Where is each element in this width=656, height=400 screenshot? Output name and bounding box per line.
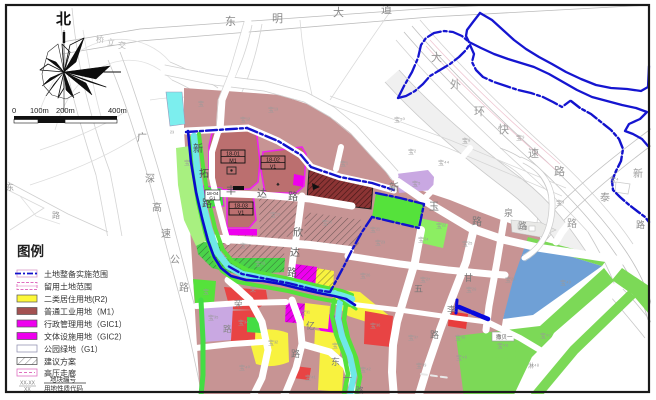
svg-text:路: 路 <box>472 215 482 228</box>
svg-text:环: 环 <box>474 106 485 118</box>
svg-text:路: 路 <box>223 324 232 334</box>
svg-text:宝⁴: 宝⁴ <box>610 176 619 184</box>
svg-text:新: 新 <box>193 142 203 155</box>
svg-text:高: 高 <box>152 201 162 214</box>
svg-text:宝¹⁵: 宝¹⁵ <box>270 211 281 219</box>
svg-text:宝⁴⁷: 宝⁴⁷ <box>540 332 551 340</box>
svg-text:建议方案: 建议方案 <box>44 357 76 367</box>
svg-text:公: 公 <box>170 255 180 266</box>
svg-text:外: 外 <box>450 78 461 91</box>
svg-text:宝⁴⁴: 宝⁴⁴ <box>438 159 450 167</box>
svg-text:李: 李 <box>447 304 456 315</box>
svg-text:V1: V1 <box>270 164 277 170</box>
svg-text:宝³³: 宝³³ <box>332 342 342 350</box>
svg-text:路: 路 <box>288 190 298 203</box>
svg-text:宝⁵⁰: 宝⁵⁰ <box>394 116 405 124</box>
svg-text:新: 新 <box>633 167 643 180</box>
svg-text:宝³⁷: 宝³⁷ <box>408 334 418 342</box>
svg-text:宝: 宝 <box>198 100 204 108</box>
svg-text:快: 快 <box>498 123 509 136</box>
svg-text:公园绿地（G1）: 公园绿地（G1） <box>44 344 103 354</box>
svg-text:拓: 拓 <box>199 168 209 180</box>
svg-text:400m: 400m <box>108 106 127 115</box>
svg-text:路: 路 <box>291 348 300 359</box>
svg-text:宝⁴³: 宝⁴³ <box>560 279 571 287</box>
svg-text:北: 北 <box>56 11 71 28</box>
svg-text:100m: 100m <box>30 106 49 115</box>
svg-text:泰: 泰 <box>600 191 610 204</box>
svg-text:荣: 荣 <box>234 299 243 309</box>
svg-text:文体设施用地（GIC2）: 文体设施用地（GIC2） <box>44 332 127 342</box>
svg-text:桥: 桥 <box>96 34 104 44</box>
svg-text:速: 速 <box>161 228 171 240</box>
svg-text:宝⁹: 宝⁹ <box>516 134 525 142</box>
svg-text:一: 一 <box>343 373 352 383</box>
svg-text:二类居住用地(R2): 二类居住用地(R2) <box>44 294 108 304</box>
svg-text:深: 深 <box>145 173 155 185</box>
svg-text:宝²⁵: 宝²⁵ <box>462 240 473 248</box>
svg-text:宝¹⁷: 宝¹⁷ <box>240 242 250 250</box>
svg-text:图例: 图例 <box>17 243 44 259</box>
svg-text:大: 大 <box>333 5 344 19</box>
svg-text:宝³⁸: 宝³⁸ <box>455 334 466 342</box>
svg-text:V1: V1 <box>238 210 245 216</box>
svg-text:立: 立 <box>107 37 115 47</box>
svg-text:宝⁸: 宝⁸ <box>462 137 471 145</box>
svg-text:宝¹: 宝¹ <box>340 160 348 168</box>
svg-text:丰: 丰 <box>226 184 236 197</box>
svg-text:路: 路 <box>52 210 60 220</box>
svg-text:五: 五 <box>414 284 423 294</box>
svg-text:²³: ²³ <box>170 131 174 137</box>
svg-text:宝¹⁸: 宝¹⁸ <box>255 260 266 268</box>
svg-text:路: 路 <box>430 329 439 340</box>
svg-text:0: 0 <box>12 106 16 115</box>
svg-text:宝³⁹: 宝³⁹ <box>416 362 427 370</box>
svg-text:18-03: 18-03 <box>234 204 248 210</box>
svg-text:东: 东 <box>225 15 236 28</box>
svg-text:宝⁴²: 宝⁴² <box>360 366 371 374</box>
svg-text:东: 东 <box>331 356 340 367</box>
svg-text:达: 达 <box>257 188 267 200</box>
svg-text:玉: 玉 <box>429 202 439 213</box>
svg-text:宝²⁶: 宝²⁶ <box>360 272 371 280</box>
svg-text:欣: 欣 <box>293 226 303 239</box>
svg-text:泉: 泉 <box>504 207 513 218</box>
svg-text:明: 明 <box>272 12 283 25</box>
svg-text:土地整备实施范围: 土地整备实施范围 <box>44 269 108 279</box>
svg-text:18-02: 18-02 <box>266 158 280 164</box>
svg-text:大: 大 <box>431 50 442 64</box>
svg-text:宝²³: 宝²³ <box>375 239 385 247</box>
svg-text:宝: 宝 <box>184 159 190 167</box>
svg-text:荣: 荣 <box>250 286 256 294</box>
svg-text:宝: 宝 <box>203 288 209 296</box>
svg-text:宝²⁴: 宝²⁴ <box>418 236 429 244</box>
svg-text:宝³¹: 宝³¹ <box>300 309 310 317</box>
svg-text:留用土地范围: 留用土地范围 <box>44 282 92 292</box>
svg-text:路: 路 <box>287 266 297 279</box>
svg-text:路: 路 <box>179 281 189 294</box>
svg-text:路: 路 <box>567 217 577 230</box>
svg-text:宝²⁸: 宝²⁸ <box>466 286 477 294</box>
svg-text:甘: 甘 <box>464 272 473 283</box>
svg-text:宝³: 宝³ <box>556 199 564 207</box>
svg-text:宝⁴⁵: 宝⁴⁵ <box>497 342 509 350</box>
svg-text:宝²²: 宝²² <box>436 222 446 230</box>
svg-text:行政管理用地（GIC1）: 行政管理用地（GIC1） <box>44 319 127 329</box>
svg-text:宝³⁵: 宝³⁵ <box>208 314 219 322</box>
svg-text:路: 路 <box>554 165 565 178</box>
svg-text:交: 交 <box>118 40 126 50</box>
svg-text:宝²⁹: 宝²⁹ <box>505 276 516 284</box>
svg-text:G1: G1 <box>209 196 216 201</box>
svg-text:速: 速 <box>528 147 539 160</box>
svg-text:宝¹³: 宝¹³ <box>268 106 278 114</box>
svg-text:宝²: 宝² <box>408 148 416 156</box>
svg-text:宝³⁶: 宝³⁶ <box>370 322 381 330</box>
svg-text:18-01: 18-01 <box>226 152 240 158</box>
svg-text:宝³⁴: 宝³⁴ <box>238 319 249 327</box>
svg-text:宝²¹: 宝²¹ <box>370 226 380 234</box>
svg-text:XX-XX: XX-XX <box>20 381 36 387</box>
svg-text:宝⁵: 宝⁵ <box>412 180 421 188</box>
svg-text:地块编号: 地块编号 <box>50 375 77 384</box>
svg-text:㉒8: ㉒8 <box>518 224 528 232</box>
svg-text:宝⁴⁰: 宝⁴⁰ <box>239 364 251 372</box>
svg-text:东: 东 <box>6 182 14 192</box>
svg-text:宝³²: 宝³² <box>268 339 278 347</box>
svg-text:宝⁴¹: 宝⁴¹ <box>305 374 316 382</box>
svg-text:200m: 200m <box>56 106 75 115</box>
svg-text:M1: M1 <box>229 158 237 164</box>
svg-text:宝²⁷: 宝²⁷ <box>420 276 430 284</box>
svg-text:宝⁴⁶: 宝⁴⁶ <box>456 354 468 362</box>
svg-text:宝¹⁶: 宝¹⁶ <box>322 219 333 227</box>
svg-text:亿: 亿 <box>306 320 315 331</box>
svg-text:普通工业用地（M1）: 普通工业用地（M1） <box>44 307 119 317</box>
svg-text:新: 新 <box>389 181 399 194</box>
svg-text:广: 广 <box>137 132 147 144</box>
svg-text:宝¹²: 宝¹² <box>240 116 250 124</box>
svg-text:撒贝一: 撒贝一 <box>496 333 513 341</box>
svg-text:路: 路 <box>636 219 645 230</box>
svg-text:淋⁴⁸: 淋⁴⁸ <box>528 362 540 370</box>
svg-text:达: 达 <box>290 247 300 259</box>
